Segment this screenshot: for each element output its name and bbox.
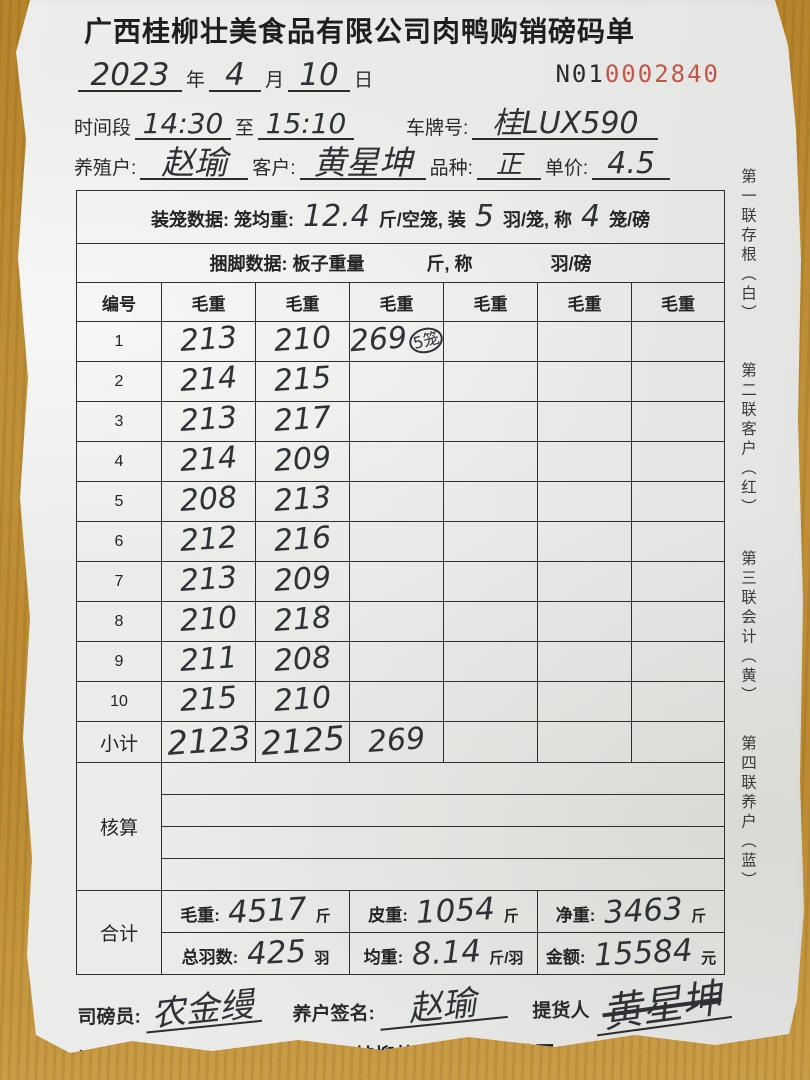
copy-label-1: 第一联存根（白） (736, 168, 758, 324)
weight-cell (538, 322, 632, 362)
subtotal-cell: 2123 (162, 722, 256, 763)
year-value: 2023 (78, 56, 182, 92)
tie-seg3: 羽/磅 (551, 254, 592, 274)
plate-label: 车牌号: (402, 113, 472, 140)
col-header-gross: 毛重 (350, 283, 444, 322)
customer-label: 客户: (248, 153, 299, 180)
weight-cell: 211 (162, 642, 256, 682)
subtotal-cell: 2125 (256, 722, 350, 763)
col-header-gross: 毛重 (256, 283, 350, 322)
copy-label-2: 第二联客户（红） (736, 362, 758, 518)
day-label: 日 (350, 65, 377, 92)
weight-cell (538, 362, 632, 402)
price-value: 4.5 (592, 144, 670, 180)
weight-cell: 213 (256, 482, 350, 522)
weight-cell: 208 (256, 642, 350, 682)
weigher-label: 司磅员: (73, 1002, 145, 1030)
subtotal-value: 269 (367, 725, 426, 757)
check-line (162, 827, 725, 859)
weight-cell: 210 (256, 322, 350, 362)
month-value: 4 (209, 56, 261, 92)
amount-unit: 元 (701, 950, 716, 967)
weight-cell (444, 402, 538, 442)
time-label: 时间段 (70, 113, 135, 140)
weights-body: 装笼数据: 笼均重: 12.4 斤/空笼, 装 5 羽/笼, 称 4 笼/磅 捆 (77, 191, 725, 975)
weight-row: 7213209 (77, 562, 725, 602)
weight-cell (538, 642, 632, 682)
time-line: 时间段 14:30 至 15:10 车牌号: 桂LUX590 (70, 104, 730, 140)
weight-cell (632, 562, 725, 602)
branch-value: 桂林银行南宁隆安支行 (458, 1076, 658, 1080)
bank-line-2: 账 户: 660000014752300022开户行: 桂林银行南宁隆安支行 (70, 1069, 730, 1080)
col-header-gross: 毛重 (632, 283, 725, 322)
weight-cell (632, 362, 725, 402)
picker-label: 提货人 (528, 995, 593, 1023)
weight-cell (444, 642, 538, 682)
tie-data-label: 捆脚数据: (209, 254, 287, 274)
weight-row: 12132102695笼 (77, 322, 725, 362)
birds-per-cage-value: 5 (471, 199, 498, 234)
serial-number: N010002840 (555, 60, 720, 88)
weight-cell: 210 (162, 602, 256, 642)
weight-cell (444, 562, 538, 602)
year-label: 年 (182, 65, 209, 92)
weight-row: 4214209 (77, 442, 725, 482)
weight-row: 5208213 (77, 482, 725, 522)
subtotal-value: 2123 (165, 722, 251, 759)
weight-cell: 208 (162, 482, 256, 522)
weight-cell (444, 602, 538, 642)
check-line (162, 795, 725, 827)
farmer-sign-label: 养户签名: (288, 998, 379, 1026)
avg-weight-cell: 均重: 8.14 斤/羽 (350, 933, 538, 975)
weight-cell: 213 (162, 402, 256, 442)
tare-total-cell: 皮重: 1054 斤 (350, 891, 538, 933)
weight-cell (538, 402, 632, 442)
gross-label: 毛重: (180, 906, 220, 925)
remit-account-label: 公司汇款账号: (74, 1048, 201, 1072)
tare-label: 皮重: (368, 906, 408, 925)
row-number: 6 (77, 522, 162, 562)
weight-cell (444, 442, 538, 482)
weight-cell: 214 (162, 442, 256, 482)
weighing-table: 装笼数据: 笼均重: 12.4 斤/空笼, 装 5 羽/笼, 称 4 笼/磅 捆 (76, 190, 725, 975)
gross-unit: 斤 (316, 908, 331, 925)
holder-label: 户名: (263, 1046, 310, 1069)
weight-cell (632, 522, 725, 562)
col-header-gross: 毛重 (162, 283, 256, 322)
row-number: 5 (77, 482, 162, 522)
day-value: 10 (288, 56, 350, 92)
to-label: 至 (231, 113, 258, 140)
col-header-gross: 毛重 (538, 283, 632, 322)
tare-unit: 斤 (504, 908, 519, 925)
row-number: 3 (77, 402, 162, 442)
weight-cell (444, 322, 538, 362)
weight-cell (632, 402, 725, 442)
weight-cell: 214 (162, 362, 256, 402)
totals-label: 合计 (77, 891, 162, 975)
copy-label-3: 第三联会计（黄） (736, 550, 758, 706)
weight-cell (350, 642, 444, 682)
count-unit: 羽 (314, 950, 329, 967)
row-number: 10 (77, 682, 162, 722)
count-total-cell: 总羽数: 425 羽 (162, 933, 350, 975)
net-unit: 斤 (691, 908, 706, 925)
row-number: 8 (77, 602, 162, 642)
weight-cell: 213 (162, 322, 256, 362)
col-header-no: 编号 (77, 283, 162, 322)
tie-seg1: 板子重量 (293, 254, 365, 274)
weight-cell (350, 522, 444, 562)
cage-count-note: 5笼 (407, 325, 446, 358)
net-total-cell: 净重: 3463 斤 (538, 891, 725, 933)
breed-label: 品种: (426, 153, 477, 180)
gross-total-cell: 毛重: 4517 斤 (162, 891, 350, 933)
signatures-line: 司磅员: 农金缦 养户签名: 赵瑜 提货人 黄星坤 (69, 984, 729, 1029)
cage-avg-label: 笼均重: (234, 210, 294, 230)
serial-digits: 0002840 (605, 60, 720, 88)
weight-cell (444, 522, 538, 562)
time-end-value: 15:10 (258, 104, 354, 140)
net-value: 3463 (599, 895, 687, 929)
subtotal-value: 2125 (259, 722, 345, 759)
bank-line-1: 公司汇款账号:户名: 广西桂柳壮美食品有限公司 (70, 1034, 730, 1072)
row-number: 4 (77, 442, 162, 482)
totals-row-2: 总羽数: 425 羽 均重: 8.14 斤/羽 金额: 15584 元 (77, 933, 725, 975)
check-section-row (77, 859, 725, 891)
weight-cell: 215 (162, 682, 256, 722)
weight-cell (632, 602, 725, 642)
weight-cell (350, 602, 444, 642)
subtotal-cell (444, 722, 538, 763)
weight-row: 8210218 (77, 602, 725, 642)
weight-cell: 215 (256, 362, 350, 402)
receipt-paper: 广西桂柳壮美食品有限公司肉鸭购销磅码单 2023 年 4 月 10 日 N010… (0, 0, 810, 1060)
receipt-content: 广西桂柳壮美食品有限公司肉鸭购销磅码单 2023 年 4 月 10 日 N010… (70, 0, 730, 1080)
cage-seg2: 羽/笼, 称 (503, 210, 572, 230)
amount-cell: 金额: 15584 元 (538, 933, 725, 975)
weight-cell (444, 482, 538, 522)
net-label: 净重: (556, 906, 596, 925)
breed-value: 正 (477, 144, 541, 180)
weight-row: 2214215 (77, 362, 725, 402)
weight-cell (350, 682, 444, 722)
weight-cell (538, 602, 632, 642)
count-label: 总羽数: (182, 948, 239, 967)
weight-row: 10215210 (77, 682, 725, 722)
cages-per-weigh-value: 4 (577, 199, 604, 234)
weight-cell (632, 682, 725, 722)
weight-cell (350, 362, 444, 402)
date-line: 2023 年 4 月 10 日 N010002840 (70, 56, 730, 92)
weight-cell (632, 642, 725, 682)
weight-cell: 213 (162, 562, 256, 602)
avg-weight-label: 均重: (364, 948, 404, 967)
gross-value: 4517 (224, 895, 312, 929)
check-section-row: 核算 (77, 763, 725, 795)
table-header-row: 编号 毛重 毛重 毛重 毛重 毛重 毛重 (77, 283, 725, 322)
weight-cell (350, 442, 444, 482)
footer-section: 司磅员: 农金缦 养户签名: 赵瑜 提货人 黄星坤 公司汇款账号:户名: 广西桂… (69, 984, 731, 1080)
cage-data-label: 装笼数据: (151, 210, 229, 230)
photo-background: 广西桂柳壮美食品有限公司肉鸭购销磅码单 2023 年 4 月 10 日 N010… (0, 0, 810, 1080)
cage-seg1: 斤/空笼, 装 (379, 210, 466, 230)
holder-value: 广西桂柳壮美食品有限公司 (315, 1043, 555, 1068)
cage-data-row: 装笼数据: 笼均重: 12.4 斤/空笼, 装 5 羽/笼, 称 4 笼/磅 (77, 191, 725, 244)
weight-cell (444, 362, 538, 402)
weight-cell (350, 482, 444, 522)
count-value: 425 (242, 937, 311, 970)
tie-data-cell: 捆脚数据: 板子重量 斤, 称 羽/磅 (77, 244, 725, 283)
weight-cell (538, 682, 632, 722)
form-title: 广西桂柳壮美食品有限公司肉鸭购销磅码单 (70, 0, 730, 50)
weight-cell (350, 562, 444, 602)
weight-cell: 217 (256, 402, 350, 442)
weight-cell: 2695笼 (350, 322, 444, 362)
avg-weight-unit: 斤/羽 (489, 950, 523, 967)
weight-cell (632, 442, 725, 482)
weight-cell (350, 402, 444, 442)
cage-seg3: 笼/磅 (609, 210, 650, 230)
time-start-value: 14:30 (135, 104, 231, 140)
cage-avg-value: 12.4 (299, 199, 374, 234)
subtotal-row: 小计 2123 2125 269 (77, 722, 725, 763)
weight-cell: 209 (256, 562, 350, 602)
weight-cell: 210 (256, 682, 350, 722)
row-number: 9 (77, 642, 162, 682)
weight-row: 9211208 (77, 642, 725, 682)
parties-line: 养殖户: 赵瑜 客户: 黄星坤 品种: 正 单价: 4.5 (70, 144, 730, 180)
check-line (162, 859, 725, 891)
amount-label: 金额: (546, 948, 586, 967)
customer-value: 黄星坤 (300, 144, 426, 180)
farmer-value: 赵瑜 (140, 144, 248, 180)
plate-value: 桂LUX590 (472, 104, 658, 140)
month-label: 月 (261, 65, 288, 92)
cage-data-cell: 装笼数据: 笼均重: 12.4 斤/空笼, 装 5 羽/笼, 称 4 笼/磅 (77, 191, 725, 244)
weight-cell (632, 322, 725, 362)
col-header-gross: 毛重 (444, 283, 538, 322)
weight-cell: 216 (256, 522, 350, 562)
totals-row-1: 合计 毛重: 4517 斤 皮重: 1054 斤 净重: (77, 891, 725, 933)
serial-prefix: N01 (555, 60, 604, 88)
weight-cell (538, 562, 632, 602)
farmer-label: 养殖户: (70, 153, 140, 180)
tie-data-row: 捆脚数据: 板子重量 斤, 称 羽/磅 (77, 244, 725, 283)
weight-cell: 212 (162, 522, 256, 562)
row-number: 2 (77, 362, 162, 402)
price-label: 单价: (541, 153, 592, 180)
check-label: 核算 (77, 763, 162, 891)
weight-cell (632, 482, 725, 522)
check-line (162, 763, 725, 795)
weight-cell (538, 522, 632, 562)
farmer-signature: 赵瑜 (377, 982, 508, 1031)
weight-cell: 209 (256, 442, 350, 482)
tie-seg2: 斤, 称 (427, 254, 473, 274)
subtotal-cell (538, 722, 632, 763)
subtotal-cell (632, 722, 725, 763)
picker-signature: 黄星坤 (592, 982, 732, 1036)
weigher-signature: 农金缦 (143, 986, 262, 1034)
weight-cell: 218 (256, 602, 350, 642)
avg-weight-value: 8.14 (407, 937, 485, 970)
weight-cell (444, 682, 538, 722)
subtotal-cell: 269 (350, 722, 444, 763)
row-number: 7 (77, 562, 162, 602)
amount-value: 15584 (589, 936, 697, 971)
weight-row: 6212216 (77, 522, 725, 562)
tare-value: 1054 (412, 895, 500, 929)
copy-label-4: 第四联养户（蓝） (736, 735, 758, 891)
check-section-row (77, 795, 725, 827)
weight-cell (538, 482, 632, 522)
weight-row: 3213217 (77, 402, 725, 442)
row-number: 1 (77, 322, 162, 362)
check-section-row (77, 827, 725, 859)
weight-cell (538, 442, 632, 482)
subtotal-label: 小计 (77, 722, 162, 763)
